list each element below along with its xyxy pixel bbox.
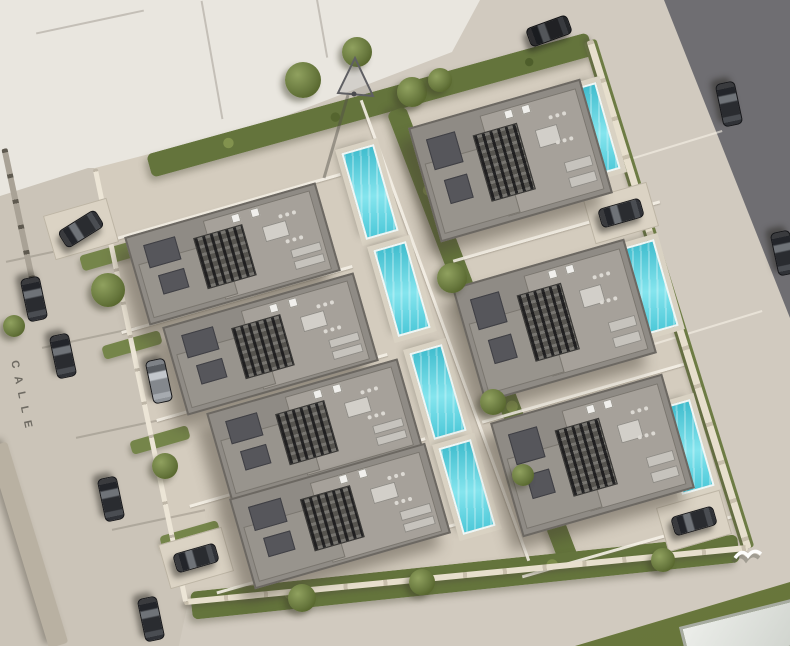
ac-unit — [602, 398, 613, 409]
tree — [397, 77, 427, 107]
tree — [512, 464, 534, 486]
tree — [480, 389, 506, 415]
patio-chairs — [630, 410, 635, 415]
tree — [437, 263, 467, 293]
ac-unit — [520, 103, 531, 114]
power-pylon-icon — [318, 40, 388, 190]
patio-chairs — [548, 115, 553, 120]
tree — [409, 569, 435, 595]
tree — [288, 584, 316, 612]
aerial-render-stage: CALLE — [0, 0, 790, 646]
tree — [651, 548, 675, 572]
flying-bird-icon — [732, 544, 764, 568]
ac-unit — [564, 263, 575, 274]
ac-unit — [547, 268, 558, 279]
patio-chairs — [592, 275, 597, 280]
tree — [285, 62, 321, 98]
ac-unit — [585, 403, 596, 414]
tree — [152, 453, 178, 479]
ac-unit — [503, 108, 514, 119]
tree — [91, 273, 125, 307]
tree — [3, 315, 25, 337]
tree — [428, 68, 452, 92]
